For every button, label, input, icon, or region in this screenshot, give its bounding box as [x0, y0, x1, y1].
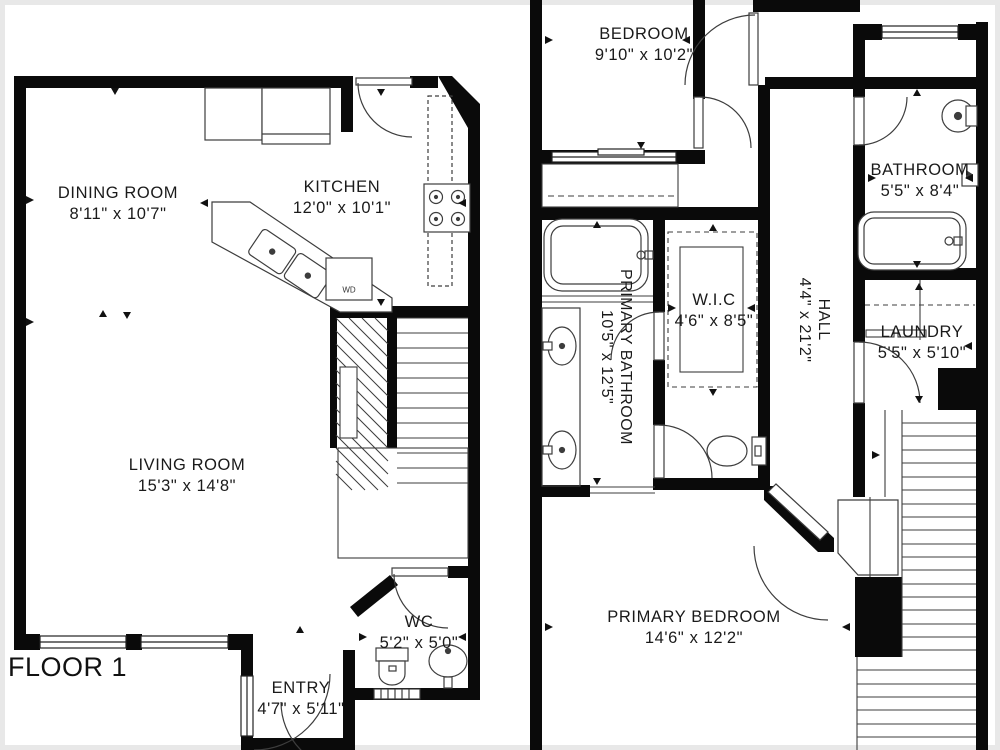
room-label-wc: WC 5'2" x 5'0" [380, 612, 459, 654]
kitchen-door-leaf [356, 78, 412, 85]
bathroom-tub [858, 212, 966, 270]
wc-toilet-bowl [379, 661, 405, 685]
room-dims: 5'5" x 8'4" [871, 181, 970, 202]
wc-diagonal-wall [350, 575, 398, 617]
room-dims: 12'0" x 10'1" [293, 198, 391, 219]
toilet-room-door-leaf [654, 425, 664, 478]
room-dims: 4'7" x 5'11" [257, 699, 344, 720]
room-dims: 9'10" x 10'2" [595, 45, 693, 66]
floor1-windows [40, 636, 253, 736]
room-label-hall: HALL 4'4" x 21'2" [795, 278, 833, 363]
room-name: WC [380, 612, 459, 633]
wic-door-leaf [654, 312, 664, 360]
stair-niche [340, 367, 357, 438]
kitchen-door-arc [358, 83, 412, 137]
bedroom-door-leaf [694, 97, 703, 148]
room-label-entry: ENTRY 4'7" x 5'11" [257, 678, 344, 720]
understair-closet [338, 448, 468, 558]
stair-landing [838, 500, 898, 575]
bedroom-door-arc [700, 97, 751, 148]
floorplan-image: DINING ROOM 8'11" x 10'7" KITCHEN 12'0" … [0, 0, 1000, 750]
room-label-living: LIVING ROOM 15'3" x 14'8" [129, 455, 246, 497]
room-dims: 14'6" x 12'2" [607, 628, 780, 649]
floorplan-drawing [0, 0, 1000, 750]
room-label-primary-bathroom: PRIMARY BATHROOM 10'5" x 12'5" [597, 269, 635, 445]
room-label-primary-bedroom: PRIMARY BEDROOM 14'6" x 12'2" [607, 607, 780, 649]
room-name: DINING ROOM [58, 183, 178, 204]
floor1-left-wall [14, 76, 26, 650]
room-dims: 8'11" x 10'7" [58, 204, 178, 225]
kitchen-cabinet [262, 88, 330, 144]
room-name: PRIMARY BEDROOM [607, 607, 780, 628]
wc-door-leaf [392, 568, 448, 576]
hall-top-door-leaf [749, 13, 758, 85]
floor1-staircase [336, 318, 468, 558]
room-dims: 4'6" x 8'5" [675, 311, 754, 332]
stair-treads [397, 318, 468, 483]
room-label-dining: DINING ROOM 8'11" x 10'7" [58, 183, 178, 225]
room-dims: 15'3" x 14'8" [129, 476, 246, 497]
room-name: ENTRY [257, 678, 344, 699]
room-dims: 4'4" x 21'2" [795, 278, 814, 363]
bathroom-door-arc [859, 97, 907, 145]
bathroom-door-leaf [854, 97, 864, 145]
room-name: PRIMARY BATHROOM [616, 269, 635, 445]
room-name: BEDROOM [595, 24, 693, 45]
room-label-laundry: LAUNDRY 5'5" x 5'10" [878, 322, 967, 364]
stove [424, 184, 470, 232]
floor1-right-wall [438, 76, 480, 700]
toilet-room-door-arc [659, 425, 712, 478]
room-name: W.I.C [675, 290, 754, 311]
room-name: BATHROOM [871, 160, 970, 181]
floor-label: FLOOR 1 [8, 652, 127, 683]
toilet-room-fixtures [707, 436, 766, 466]
room-dims: 5'2" x 5'0" [380, 633, 459, 654]
room-name: HALL [814, 278, 833, 363]
kitchen-cabinet [205, 88, 262, 140]
room-label-kitchen: KITCHEN 12'0" x 10'1" [293, 177, 391, 219]
room-name: LIVING ROOM [129, 455, 246, 476]
room-name: KITCHEN [293, 177, 391, 198]
room-label-wic: W.I.C 4'6" x 8'5" [675, 290, 754, 332]
room-name: LAUNDRY [878, 322, 967, 343]
laundry-door-leaf [854, 342, 864, 403]
room-label-bathroom: BATHROOM 5'5" x 8'4" [871, 160, 970, 202]
room-dims: 5'5" x 5'10" [878, 343, 967, 364]
washer-dryer-label: WD [342, 286, 355, 295]
bedroom-closet [542, 164, 678, 207]
room-dims: 10'5" x 12'5" [597, 269, 616, 445]
toilet-bowl [707, 436, 747, 466]
floor2-left-wall [530, 0, 542, 750]
room-label-bedroom: BEDROOM 9'10" x 10'2" [595, 24, 693, 66]
